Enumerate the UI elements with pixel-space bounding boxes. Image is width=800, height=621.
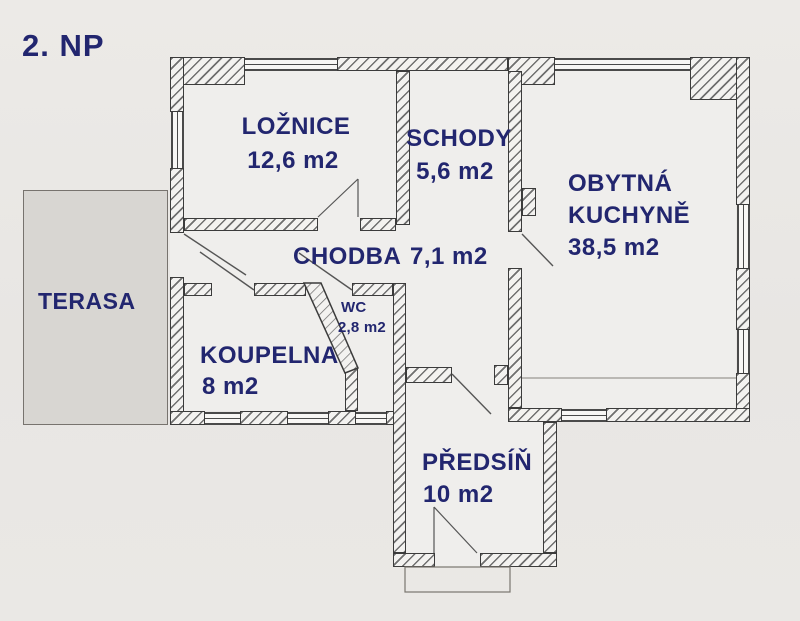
room-label-chodba: CHODBA <box>293 243 401 271</box>
hall-door-leaf <box>452 374 491 414</box>
porch-outline <box>405 567 510 592</box>
entry-door-leaf <box>434 507 477 553</box>
room-label-kuchyne-line1: OBYTNÁ <box>568 170 672 198</box>
room-label-wc: WC <box>341 299 366 316</box>
room-area-kuchyne: 38,5 m2 <box>568 234 660 262</box>
bathroom-door-leaf <box>200 252 254 290</box>
room-area-koupelna: 8 m2 <box>202 373 259 401</box>
floor-plan: 2. NP LOŽNICE 12,6 m2 SCHODY 5,6 m2 OBYT… <box>0 0 800 621</box>
room-area-chodba: 7,1 m2 <box>410 243 488 271</box>
bedroom-door-leaf <box>318 179 358 217</box>
room-label-schody: SCHODY <box>406 125 512 153</box>
page-title: 2. NP <box>22 28 105 64</box>
room-area-wc: 2,8 m2 <box>338 319 386 336</box>
kitchen-door-leaf <box>522 234 553 266</box>
room-label-koupelna: KOUPELNA <box>200 342 339 370</box>
room-label-loznice: LOŽNICE <box>242 113 351 141</box>
room-area-schody: 5,6 m2 <box>416 158 494 186</box>
room-area-predsin: 10 m2 <box>423 481 494 509</box>
room-label-kuchyne-line2: KUCHYNĚ <box>568 202 690 230</box>
room-area-loznice: 12,6 m2 <box>247 147 339 175</box>
room-label-terasa: TERASA <box>38 288 136 315</box>
terrace-door-leaf <box>184 234 246 275</box>
room-label-predsin: PŘEDSÍŇ <box>422 449 532 477</box>
